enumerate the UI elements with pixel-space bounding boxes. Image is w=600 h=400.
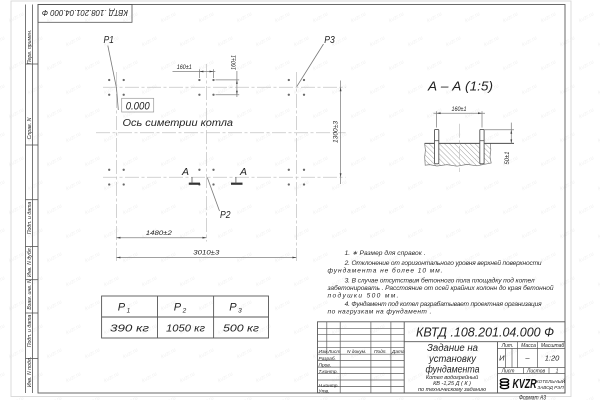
svg-text:1: 1 (556, 369, 559, 375)
svg-text:забетонировать . Расстояние от: забетонировать . Расстояние от осей край… (327, 284, 554, 292)
svg-text:1300±3: 1300±3 (332, 121, 339, 143)
svg-text:Листов: Листов (526, 369, 546, 375)
svg-text:1:20: 1:20 (545, 354, 560, 363)
svg-text:Перв. примен.: Перв. примен. (27, 30, 33, 64)
svg-text:А – А (1:5): А – А (1:5) (427, 80, 493, 94)
svg-text:по техническому заданию: по техническому заданию (418, 387, 486, 393)
svg-text:Подп. и дата: Подп. и дата (27, 202, 33, 235)
svg-text:Лист: Лист (327, 349, 340, 355)
svg-text:КОТЕЛЬНЫЙ: КОТЕЛЬНЫЙ (536, 377, 566, 384)
svg-text:Разраб.: Разраб. (319, 356, 336, 362)
svg-text:Инв. N подл.: Инв. N подл. (27, 357, 33, 387)
svg-text:390 кг: 390 кг (110, 324, 149, 335)
svg-text:Подп.: Подп. (374, 349, 387, 355)
svg-text:3. В случае отсутствия бетонно: 3. В случае отсутствия бетонного пола пл… (345, 276, 535, 284)
svg-text:И: И (499, 354, 505, 363)
svg-text:установку: установку (428, 354, 477, 365)
svg-text:Р2: Р2 (220, 210, 231, 221)
svg-text:Формат А3: Формат А3 (519, 396, 547, 400)
svg-text:Лит.: Лит. (501, 343, 514, 349)
svg-text:Задание на: Задание на (427, 343, 478, 354)
svg-text:А: А (239, 166, 247, 178)
svg-text:ЗАВОД РЭП: ЗАВОД РЭП (537, 385, 564, 390)
svg-text:Дата: Дата (391, 349, 405, 355)
svg-text:3010±3: 3010±3 (193, 250, 219, 257)
svg-text:Котел водогрейный: Котел водогрейный (426, 374, 478, 381)
svg-text:Масштаб: Масштаб (541, 343, 565, 349)
svg-text:1. ∗ Размер для справок .: 1. ∗ Размер для справок . (345, 249, 426, 257)
svg-text:Утв.: Утв. (319, 389, 330, 395)
svg-text:4. Фундамент под котел разраба: 4. Фундамент под котел разрабатывает про… (345, 300, 542, 308)
svg-text:Подп. и дата: Подп. и дата (27, 315, 33, 348)
svg-text:0.000: 0.000 (126, 100, 151, 112)
svg-text:фундамента не более 10 мм.: фундамента не более 10 мм. (328, 267, 443, 275)
svg-text:160±1: 160±1 (231, 55, 238, 70)
svg-text:1480±2: 1480±2 (146, 230, 172, 237)
svg-text:160±1: 160±1 (177, 64, 192, 71)
svg-text:подушки 500 мм.: подушки 500 мм. (328, 292, 399, 300)
svg-text:КВТД .108.201.04.000 Ф: КВТД .108.201.04.000 Ф (42, 8, 128, 18)
svg-text:Н.контр.: Н.контр. (319, 383, 339, 389)
svg-text:Т.контр.: Т.контр. (319, 369, 338, 375)
svg-text:Инв. N дубл.: Инв. N дубл. (27, 247, 33, 277)
svg-text:Справ. N: Справ. N (27, 117, 33, 139)
svg-text:Лист: Лист (501, 369, 515, 375)
svg-text:160±1: 160±1 (452, 106, 467, 113)
svg-text:500 кг: 500 кг (223, 324, 259, 335)
svg-text:KVZR: KVZR (513, 377, 537, 391)
svg-text:Взам. инв. N: Взам. инв. N (27, 279, 33, 309)
svg-text:1050 кг: 1050 кг (166, 324, 205, 335)
svg-text:2. Отклонение от горизонтально: 2. Отклонение от горизонтального уровня … (344, 259, 542, 267)
svg-text:по нагрузкам на фундамент .: по нагрузкам на фундамент . (328, 307, 432, 315)
svg-text:Р3: Р3 (324, 35, 335, 46)
svg-text:фундамента: фундамента (426, 363, 480, 375)
svg-text:N докум.: N докум. (347, 349, 366, 355)
svg-text:–: – (524, 353, 530, 362)
svg-text:КВТД .108.201.04.000 Ф: КВТД .108.201.04.000 Ф (416, 325, 554, 340)
svg-text:Пров.: Пров. (319, 362, 332, 368)
svg-text:Масса: Масса (521, 343, 536, 349)
svg-text:А: А (181, 166, 189, 178)
svg-text:Ось симетрии котла: Ось симетрии котла (123, 118, 234, 129)
svg-text:50±1: 50±1 (504, 151, 511, 164)
svg-text:Р1: Р1 (103, 35, 114, 46)
svg-text:КВ -1,25 Д ( К ): КВ -1,25 Д ( К ) (433, 381, 471, 387)
